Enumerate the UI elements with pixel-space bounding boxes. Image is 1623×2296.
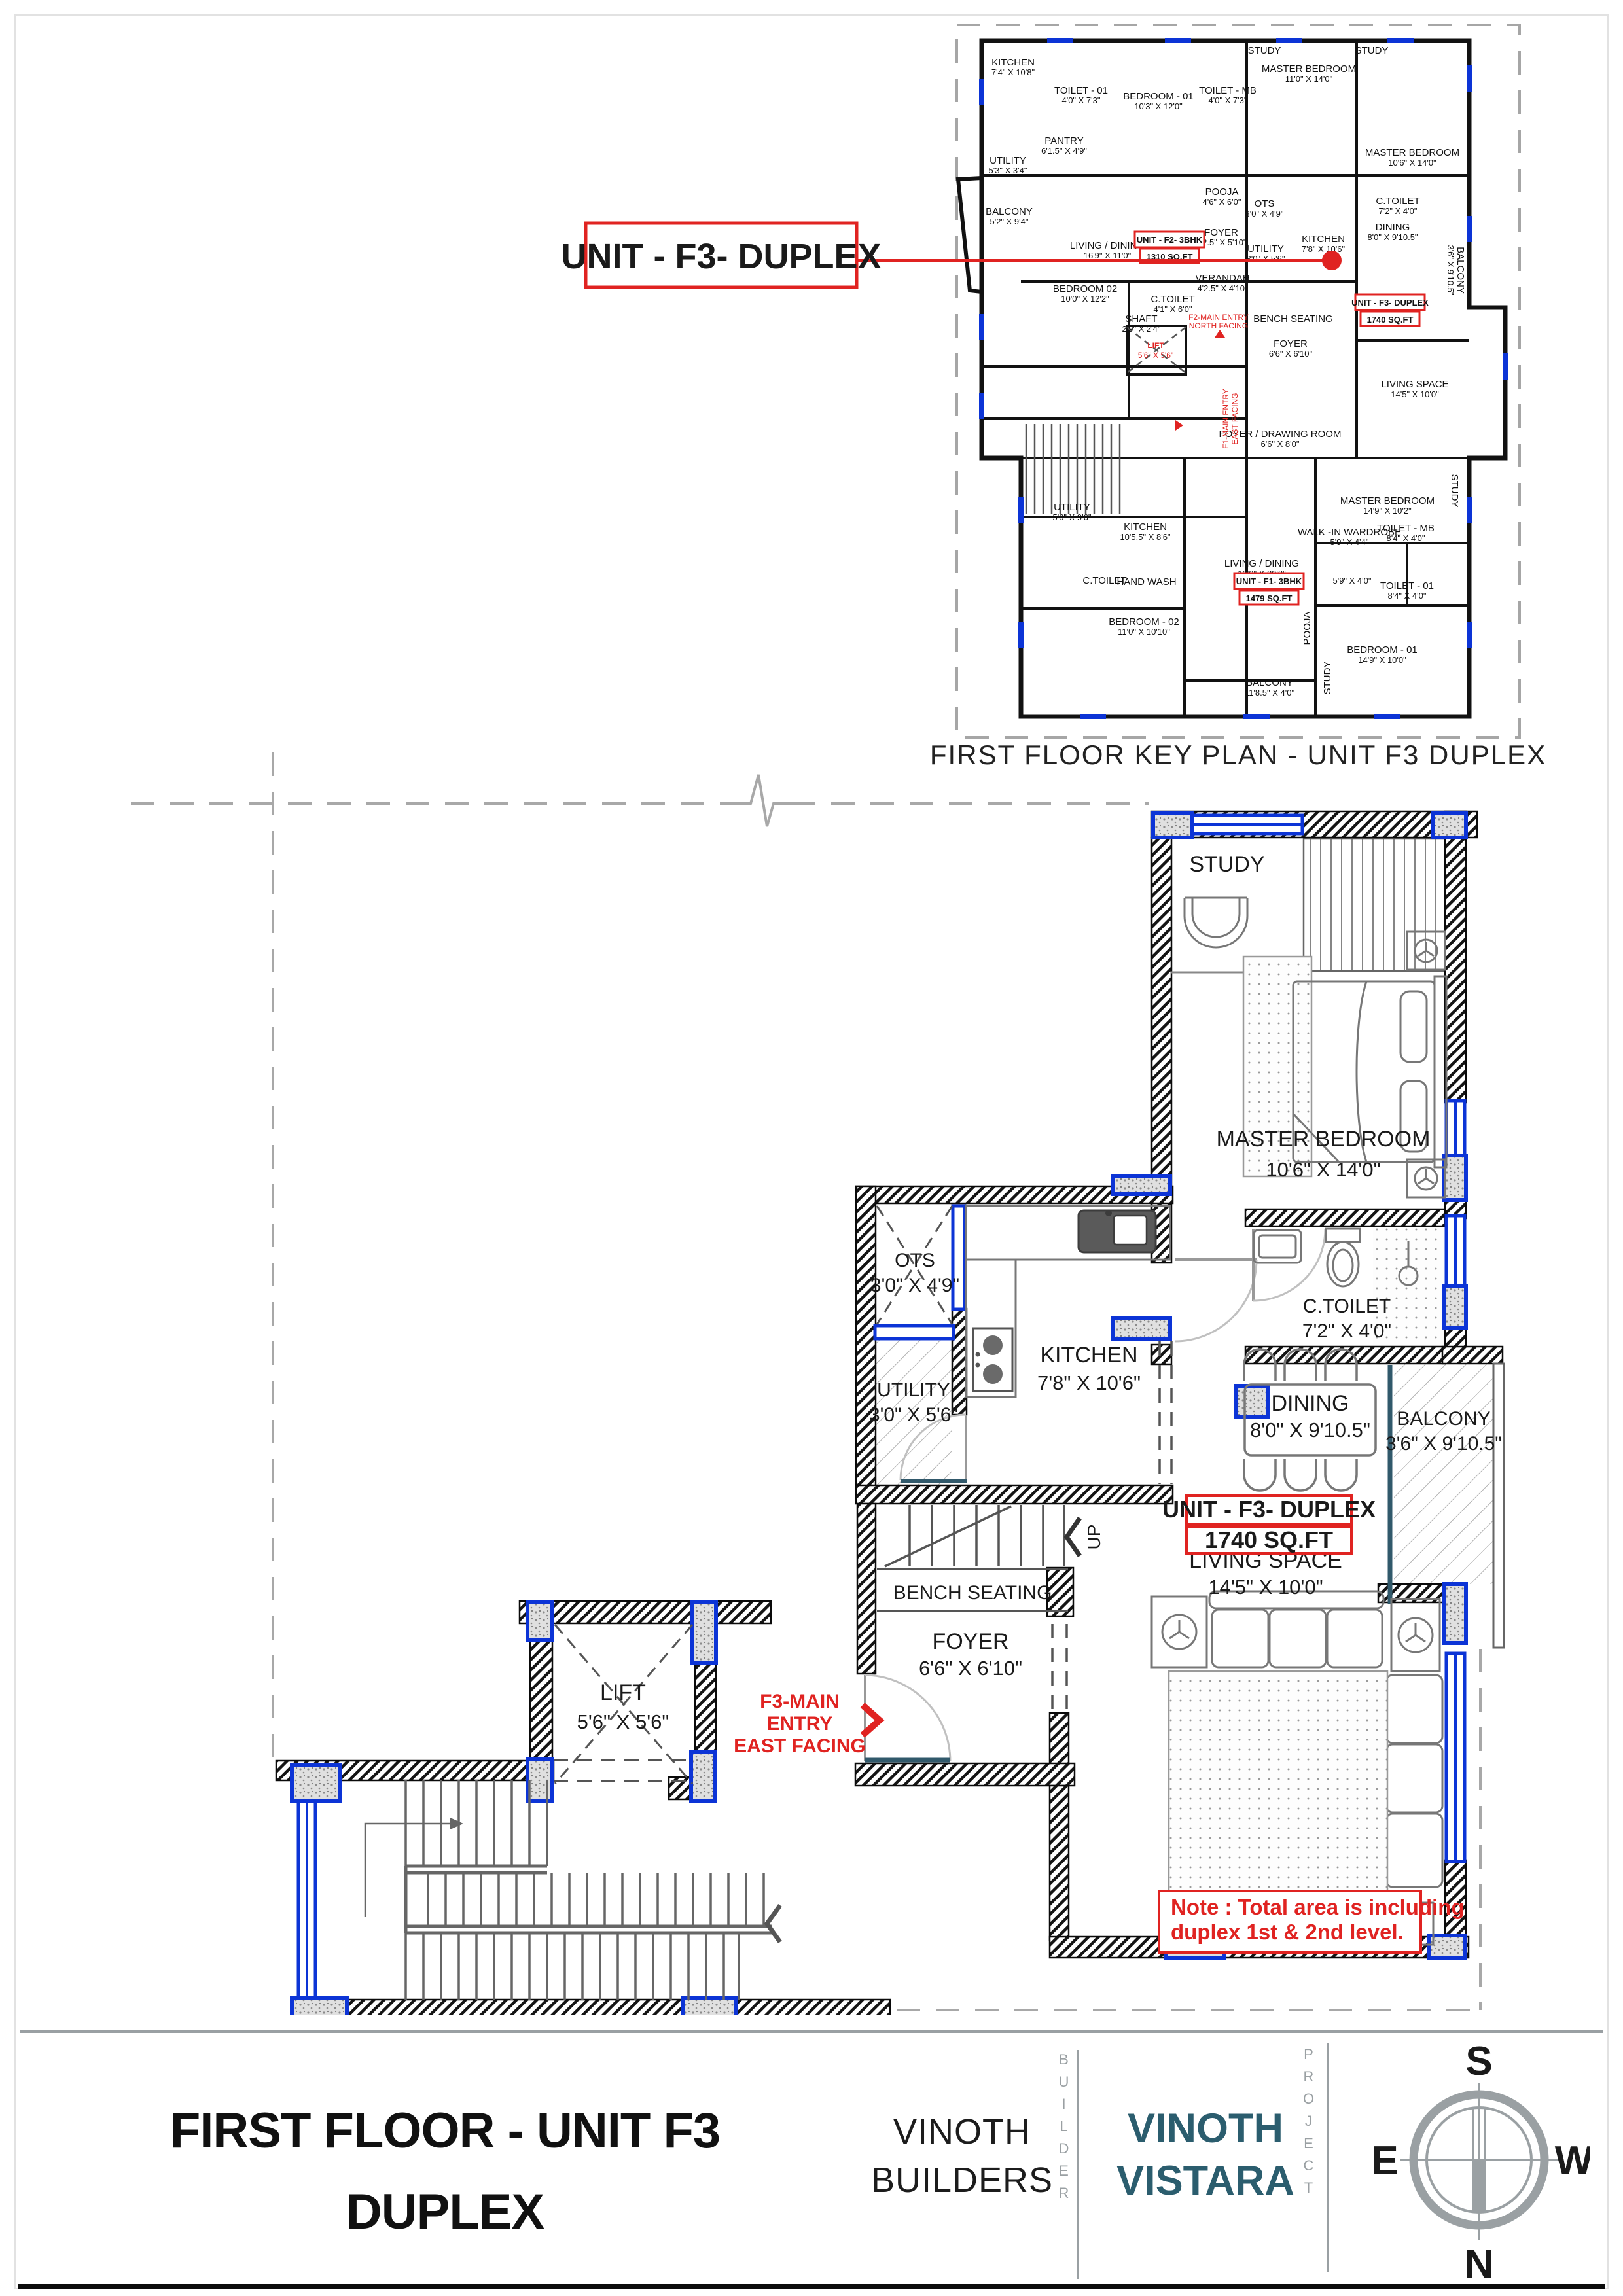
bench-label: BENCH SEATING (893, 1582, 1052, 1604)
sheet-title: FIRST FLOOR - UNIT F3 DUPLEX (72, 2091, 818, 2253)
wc (1327, 1242, 1359, 1286)
room-dims: 8'4" X 4'0" (1386, 533, 1425, 543)
f2-entry-label: NORTH FACING (1189, 321, 1248, 330)
room-label: TOILET - MB (1377, 523, 1435, 534)
room-label: BALCONY (1455, 247, 1466, 294)
room-dims: 10'6" X 14'0" (1388, 158, 1436, 168)
compass-east: E (1371, 2138, 1398, 2183)
room-label: BEDROOM - 01 (1123, 91, 1194, 102)
room-dims: 6'1.5" X 4'9" (1041, 146, 1087, 156)
project-role-vertical-label: PROJECT (1300, 2046, 1317, 2202)
room-dims: 16'9" X 11'0" (1084, 251, 1132, 260)
room-dims: 14'9" X 10'2" (1363, 506, 1412, 516)
compass-west: W (1555, 2138, 1590, 2183)
wc-tank (1326, 1229, 1360, 1242)
project-name-line2: VISTARA (1094, 2155, 1317, 2207)
room-label: MASTER BEDROOM (1262, 63, 1356, 75)
room-dims: 10'0" X 12'2" (1061, 294, 1109, 304)
kitchen-fittings (966, 1206, 1170, 1397)
room-dims: 7'4" X 10'8" (991, 67, 1035, 77)
project-name: VINOTH VISTARA (1094, 2102, 1317, 2207)
room-label: SHAFT (1125, 313, 1157, 325)
builder-name: VINOTH BUILDERS (864, 2108, 1060, 2204)
ctoilet-label: C.TOILET (1303, 1296, 1391, 1317)
sofa-seat (1386, 1744, 1442, 1812)
builder-name-line1: VINOTH (864, 2108, 1060, 2156)
master-bedroom-dims: 10'6" X 14'0" (1266, 1158, 1380, 1181)
f1-entry-arrow-icon (1175, 420, 1183, 431)
room-label: BENCH SEATING (1253, 313, 1332, 325)
title-block-bottom-bar (18, 2284, 1605, 2289)
room-label: STUDY (1322, 662, 1333, 695)
dining-chairs-bottom (1244, 1459, 1357, 1491)
unit-callout-label: UNIT - F3- DUPLEX (561, 237, 881, 276)
stairs-up-label: UP (1084, 1525, 1104, 1550)
title-block-top-rule (20, 2030, 1603, 2033)
room-dims: 6'6" X 8'0" (1260, 439, 1299, 449)
room-dims: 10'5.5" X 8'6" (1120, 532, 1170, 542)
f2-entry-label: F2-MAIN ENTRY (1188, 313, 1249, 322)
ots-dims: 3'0" X 4'9" (870, 1275, 959, 1296)
lift-dims: 5'6" X 5'6" (1138, 351, 1173, 360)
room-label: MASTER BEDROOM (1365, 147, 1459, 158)
room-dims: 3'0" X 5'6" (1246, 254, 1285, 264)
room-label: BALCONY (986, 206, 1033, 217)
title-block: FIRST FLOOR - UNIT F3 DUPLEX VINOTH BUIL… (0, 2030, 1623, 2289)
pillow (1400, 991, 1427, 1062)
sheet-title-line2: DUPLEX (72, 2172, 818, 2253)
note-box: Note : Total area is including duplex 1s… (1159, 1891, 1465, 1952)
unit-tag-f3: UNIT - F3- DUPLEX (1351, 298, 1429, 308)
sofa-seat (1212, 1610, 1268, 1667)
room-label: KITCHEN (991, 57, 1035, 68)
unit-tag-f1: UNIT - F1- 3BHK (1236, 576, 1302, 586)
window (1446, 1216, 1465, 1289)
room-label: UTILITY (1247, 243, 1284, 255)
floor-plan-drawing: KITCHEN7'4" X 10'8" TOILET - 014'0" X 7'… (0, 0, 1623, 2015)
note-line1: Note : Total area is including (1171, 1895, 1465, 1919)
room-label: POOJA (1302, 612, 1313, 645)
window (1446, 1653, 1465, 1862)
room-dims: 14'9" X 10'0" (1358, 655, 1406, 665)
stairs-up-label-group: UP (1084, 1525, 1104, 1550)
room-dims: 11'0" X 10'10" (1118, 627, 1170, 637)
sofa-seat (1386, 1814, 1442, 1887)
side-table-fan (1391, 1599, 1440, 1671)
f1-entry-label: F1-MAIN ENTRY (1221, 389, 1230, 449)
side-table-fan (1152, 1597, 1207, 1667)
room-dims: 4'0" X 7'3" (1208, 96, 1247, 105)
unit-callout: UNIT - F3- DUPLEX (561, 223, 881, 287)
unit-tag-f1-area: 1479 SQ.FT (1246, 593, 1293, 603)
key-plan: KITCHEN7'4" X 10'8" TOILET - 014'0" X 7'… (855, 25, 1546, 770)
balcony-outer-wall (1493, 1364, 1504, 1648)
room-label: UTILITY (1054, 502, 1090, 513)
sofa-seat (1270, 1610, 1326, 1667)
f1-entry-label: EAST FACING (1230, 393, 1240, 444)
room-label: VERANDAH (1195, 273, 1249, 284)
kitchen-dims: 7'8" X 10'6" (1037, 1371, 1141, 1394)
room-label: C.TOILET (1150, 294, 1194, 305)
lift-dims: 5'6" X 5'6" (577, 1710, 669, 1733)
room-label: LIVING / DINING (1070, 240, 1145, 251)
room-label: OTS (1255, 198, 1275, 209)
room-label: MASTER BEDROOM (1340, 495, 1435, 506)
room-label: TOILET - 01 (1380, 580, 1434, 592)
study-label: STUDY (1189, 852, 1264, 877)
entry-line1: F3-MAIN (760, 1691, 840, 1712)
room-label: STUDY (1449, 474, 1460, 508)
room-dims: 4'0" X 7'3" (1061, 96, 1100, 105)
compass: S N E W (1368, 2034, 1590, 2283)
unit-tag-f2: UNIT - F2- 3BHK (1137, 235, 1203, 245)
room-dims: 14'5" X 10'0" (1391, 389, 1439, 399)
window (1446, 1101, 1465, 1158)
room-dims: 3'0" X 4'9" (1245, 209, 1283, 219)
room-label: BALCONY (1246, 677, 1293, 688)
master-bedroom-door (1175, 1260, 1257, 1341)
room-label: HAND WASH (1116, 576, 1176, 588)
sofa-seat (1386, 1675, 1442, 1743)
window (298, 1801, 315, 2000)
room-label: PANTRY (1044, 135, 1083, 147)
sofa-seat (1327, 1610, 1382, 1667)
stove (973, 1328, 1012, 1391)
utility-dims: 3'0" X 5'6" (869, 1404, 958, 1426)
foyer-label: FOYER (932, 1629, 1008, 1654)
room-label: LIVING SPACE (1381, 379, 1448, 390)
room-dims: 5'0" X 9'6" (1052, 512, 1091, 522)
project-name-line1: VINOTH (1094, 2102, 1317, 2155)
compass-needle (1473, 2160, 1485, 2211)
sheet-title-line1: FIRST FLOOR - UNIT F3 (72, 2091, 818, 2172)
room-label: FOYER (1274, 338, 1308, 349)
entry-line3: EAST FACING (734, 1735, 866, 1757)
unit-tag-f3-area: 1740 SQ.FT (1367, 315, 1414, 325)
entry-annotation: F3-MAIN ENTRY EAST FACING (734, 1691, 880, 1757)
key-plan-caption: FIRST FLOOR KEY PLAN - UNIT F3 DUPLEX (930, 739, 1546, 770)
lift-label: LIFT (600, 1680, 646, 1705)
room-label: UTILITY (990, 155, 1026, 166)
main-plan: UP (276, 811, 1504, 2015)
room-dims: 10'3" X 12'0" (1134, 101, 1183, 111)
living-rug (1169, 1671, 1387, 1895)
window (875, 1326, 954, 1339)
room-label: STUDY (1248, 45, 1281, 56)
staircase-lower (365, 1780, 780, 2000)
room-label: TOILET - 01 (1054, 85, 1108, 96)
callout-dot (1322, 251, 1342, 270)
toilet-door (1253, 1229, 1325, 1301)
room-label: FOYER (1204, 227, 1238, 238)
room-dims: 4'6" X 6'0" (1202, 197, 1241, 207)
dining-label: DINING (1272, 1391, 1349, 1416)
unit-tag-line1: UNIT - F3- DUPLEX (1162, 1496, 1376, 1523)
room-label: BEDROOM - 02 (1109, 616, 1179, 627)
ots-label: OTS (895, 1250, 935, 1271)
room-label: STUDY (1355, 45, 1389, 56)
room-dims: 7'2" X 4'0" (1378, 206, 1417, 216)
master-bedroom-label: MASTER BEDROOM (1217, 1127, 1431, 1152)
builder-name-line2: BUILDERS (864, 2156, 1060, 2204)
dining-dims: 8'0" X 9'10.5" (1250, 1419, 1370, 1441)
kitchen-label: KITCHEN (1040, 1343, 1137, 1368)
utility-label: UTILITY (877, 1379, 950, 1401)
room-dims: 7'8" X 10'6" (1302, 244, 1346, 254)
room-dims: 5'9" X 4'0" (1332, 576, 1371, 586)
ceiling-fan-icon (1407, 1159, 1445, 1197)
divider-rule (1327, 2043, 1329, 2272)
room-label: LIVING / DINING (1224, 558, 1299, 569)
room-dims: 11'0" X 14'0" (1285, 74, 1333, 84)
room-label: KITCHEN (1302, 234, 1345, 245)
foyer-dims: 6'6" X 6'10" (919, 1657, 1022, 1680)
room-dims: 5'3" X 3'4" (988, 166, 1027, 175)
room-dims: 2'9" X 2'4" (1122, 324, 1160, 334)
window (1192, 815, 1302, 834)
room-dims: 3'6" X 9'10.5" (1446, 245, 1455, 295)
room-label: TOILET - MB (1199, 85, 1257, 96)
balcony-floor (1394, 1364, 1493, 1584)
room-dims: 5'9" X 4'4" (1330, 537, 1368, 547)
room-dims: 8'4" X 4'0" (1387, 591, 1426, 601)
divider-rule (1077, 2050, 1079, 2279)
entry-line2: ENTRY (767, 1713, 833, 1735)
key-plan-labels: KITCHEN7'4" X 10'8" TOILET - 014'0" X 7'… (986, 45, 1466, 698)
room-dims: 8'0" X 9'10.5" (1367, 232, 1418, 242)
note-line2: duplex 1st & 2nd level. (1171, 1920, 1404, 1944)
living-dims: 14'5" X 10'0" (1208, 1576, 1323, 1598)
builder-role-vertical-label: BUILDER (1055, 2051, 1072, 2207)
room-label: BEDROOM 02 (1053, 283, 1117, 294)
room-label: C.TOILET (1376, 196, 1419, 207)
room-dims: 6'6" X 6'10" (1269, 349, 1313, 359)
compass-south: S (1465, 2039, 1492, 2084)
unit-tag-line2: 1740 SQ.FT (1205, 1527, 1333, 1553)
balcony-dims: 3'6" X 9'10.5" (1385, 1433, 1502, 1455)
room-label: POOJA (1205, 186, 1239, 198)
room-dims: 11'8.5" X 4'0" (1245, 688, 1295, 698)
ctoilet-dims: 7'2" X 4'0" (1302, 1320, 1391, 1342)
compass-north: N (1465, 2242, 1494, 2283)
room-label: BEDROOM - 01 (1347, 645, 1418, 656)
balcony-label: BALCONY (1397, 1408, 1490, 1430)
room-label: KITCHEN (1124, 521, 1167, 533)
f2-entry-arrow-icon (1215, 330, 1225, 338)
room-label: DINING (1376, 222, 1410, 233)
room-dims: 4'2.5" X 4'10" (1197, 283, 1247, 293)
room-dims: 5'2" X 9'4" (990, 217, 1028, 226)
lift-label: LIFT (1147, 341, 1164, 350)
room-dims: 4'1" X 6'0" (1153, 304, 1192, 314)
unit-area-tag: UNIT - F3- DUPLEX 1740 SQ.FT (1162, 1496, 1376, 1553)
study-chair (1185, 898, 1247, 947)
